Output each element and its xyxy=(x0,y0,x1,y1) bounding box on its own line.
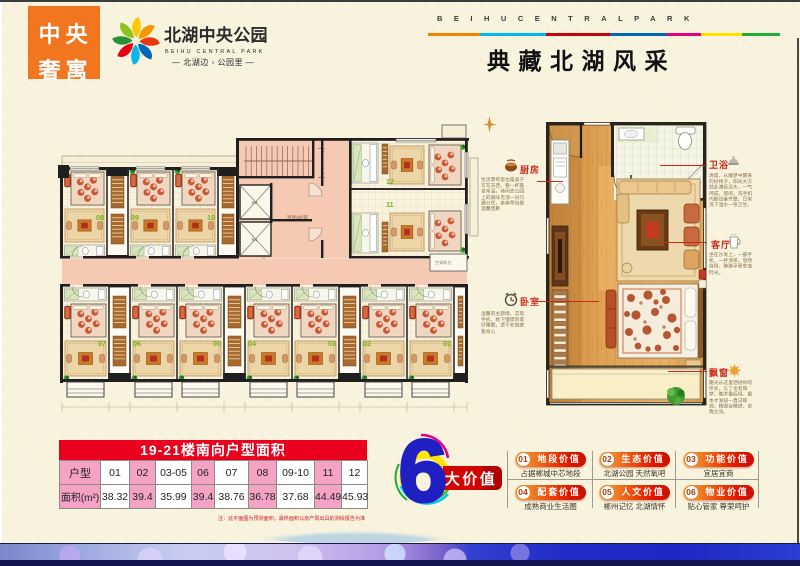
svg-text:K1: K1 xyxy=(252,237,258,242)
svg-text:11: 11 xyxy=(386,200,394,209)
svg-text:06: 06 xyxy=(133,339,141,348)
svg-text:03: 03 xyxy=(328,339,336,348)
svg-text:空调机位: 空调机位 xyxy=(435,259,452,266)
svg-text:6: 6 xyxy=(399,428,448,518)
svg-text:09: 09 xyxy=(131,213,139,222)
svg-text:08: 08 xyxy=(96,213,104,222)
svg-text:K2: K2 xyxy=(252,200,258,205)
svg-text:10: 10 xyxy=(207,213,215,222)
svg-text:12: 12 xyxy=(386,177,394,186)
svg-text:大价值: 大价值 xyxy=(445,470,498,488)
svg-text:04: 04 xyxy=(248,339,256,348)
svg-text:01: 01 xyxy=(443,339,451,348)
svg-text:02: 02 xyxy=(363,339,371,348)
svg-text:07: 07 xyxy=(98,339,106,348)
svg-text:05: 05 xyxy=(213,339,221,348)
